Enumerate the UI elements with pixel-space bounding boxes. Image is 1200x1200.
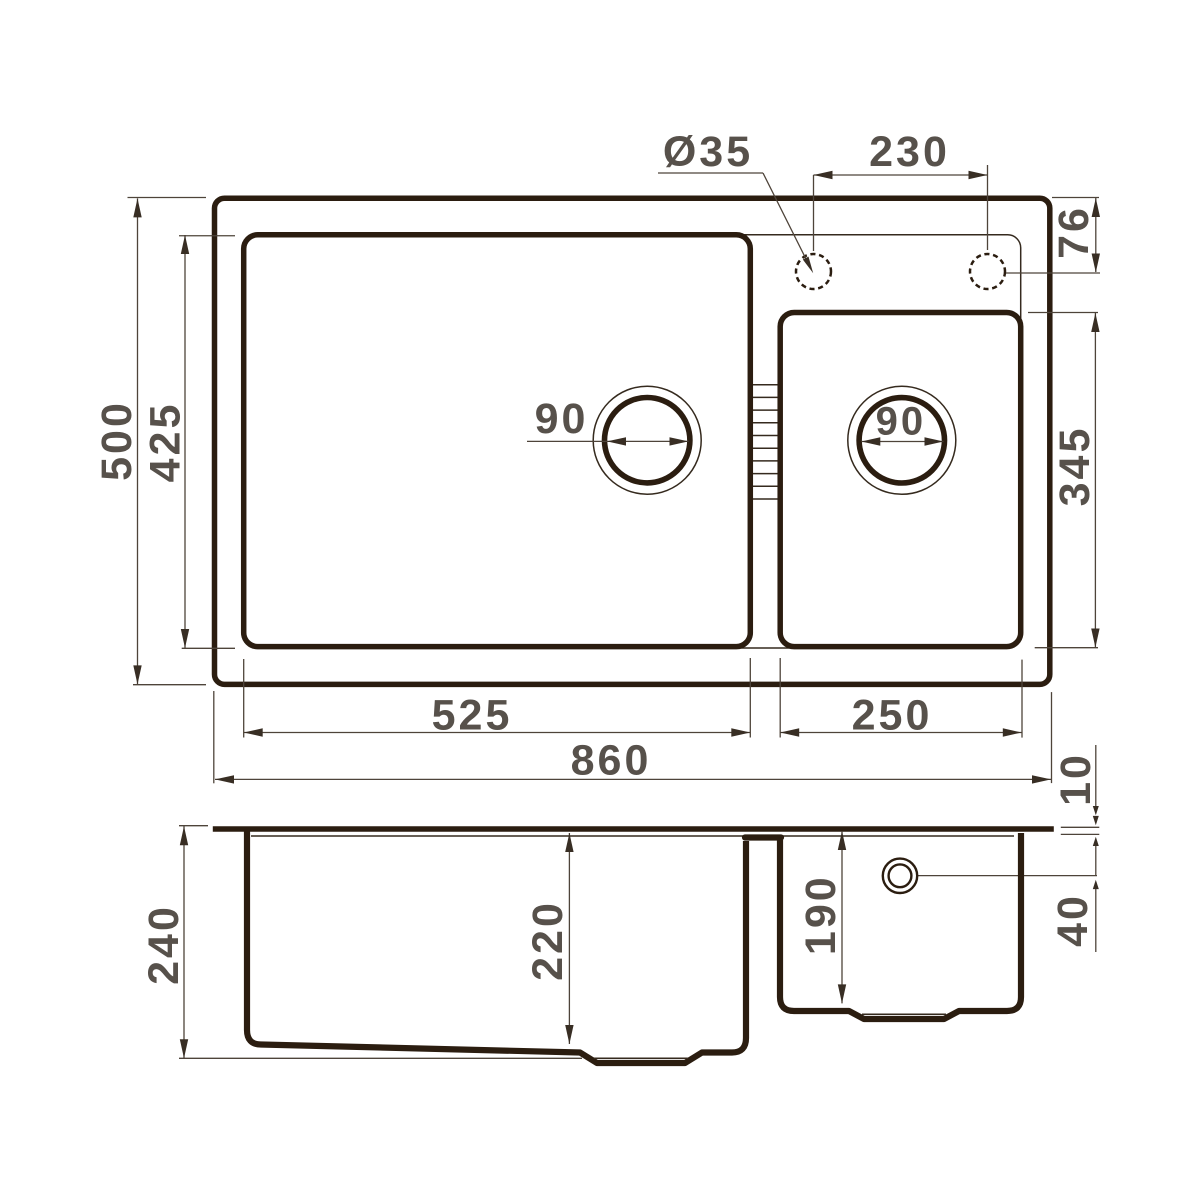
svg-text:220: 220 (524, 900, 572, 981)
svg-text:76: 76 (1050, 205, 1098, 259)
svg-text:425: 425 (141, 402, 189, 483)
svg-text:10: 10 (1052, 752, 1100, 806)
svg-text:230: 230 (869, 128, 950, 176)
svg-text:250: 250 (852, 692, 933, 740)
svg-text:190: 190 (797, 874, 845, 955)
svg-text:525: 525 (432, 692, 513, 740)
svg-text:240: 240 (140, 904, 188, 985)
svg-text:500: 500 (93, 400, 141, 481)
svg-text:Ø35: Ø35 (663, 128, 753, 176)
svg-text:860: 860 (571, 737, 652, 785)
svg-text:40: 40 (1049, 893, 1097, 947)
svg-text:345: 345 (1051, 426, 1099, 507)
svg-text:90: 90 (535, 395, 589, 443)
svg-text:90: 90 (876, 400, 927, 444)
